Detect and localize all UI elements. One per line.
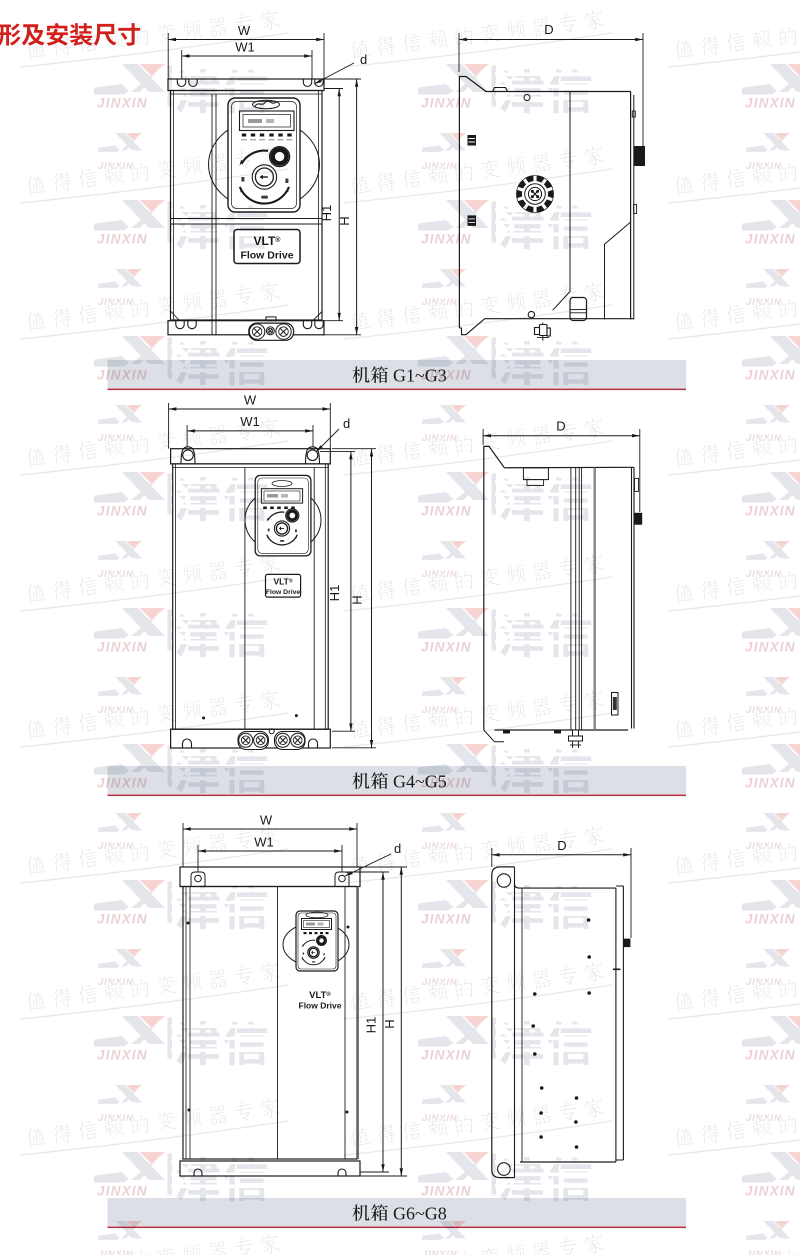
- svg-text:H: H: [337, 216, 352, 225]
- svg-text:G6~G8: G6~G8: [393, 1204, 447, 1224]
- svg-text:W1: W1: [240, 414, 260, 429]
- svg-text:d: d: [394, 841, 401, 856]
- svg-text:VLT®: VLT®: [309, 990, 331, 1001]
- svg-text:d: d: [343, 416, 350, 431]
- svg-text:H1: H1: [327, 585, 342, 602]
- svg-text:Flow Drive: Flow Drive: [299, 1001, 342, 1011]
- svg-text:W1: W1: [235, 40, 255, 55]
- svg-text:W: W: [260, 813, 273, 828]
- svg-text:H: H: [382, 1019, 397, 1028]
- svg-text:W: W: [244, 393, 257, 408]
- svg-text:H1: H1: [364, 1017, 379, 1034]
- svg-text:Flow Drive: Flow Drive: [240, 250, 293, 262]
- svg-text:Flow Drive: Flow Drive: [266, 589, 301, 596]
- svg-text:H1: H1: [319, 205, 334, 222]
